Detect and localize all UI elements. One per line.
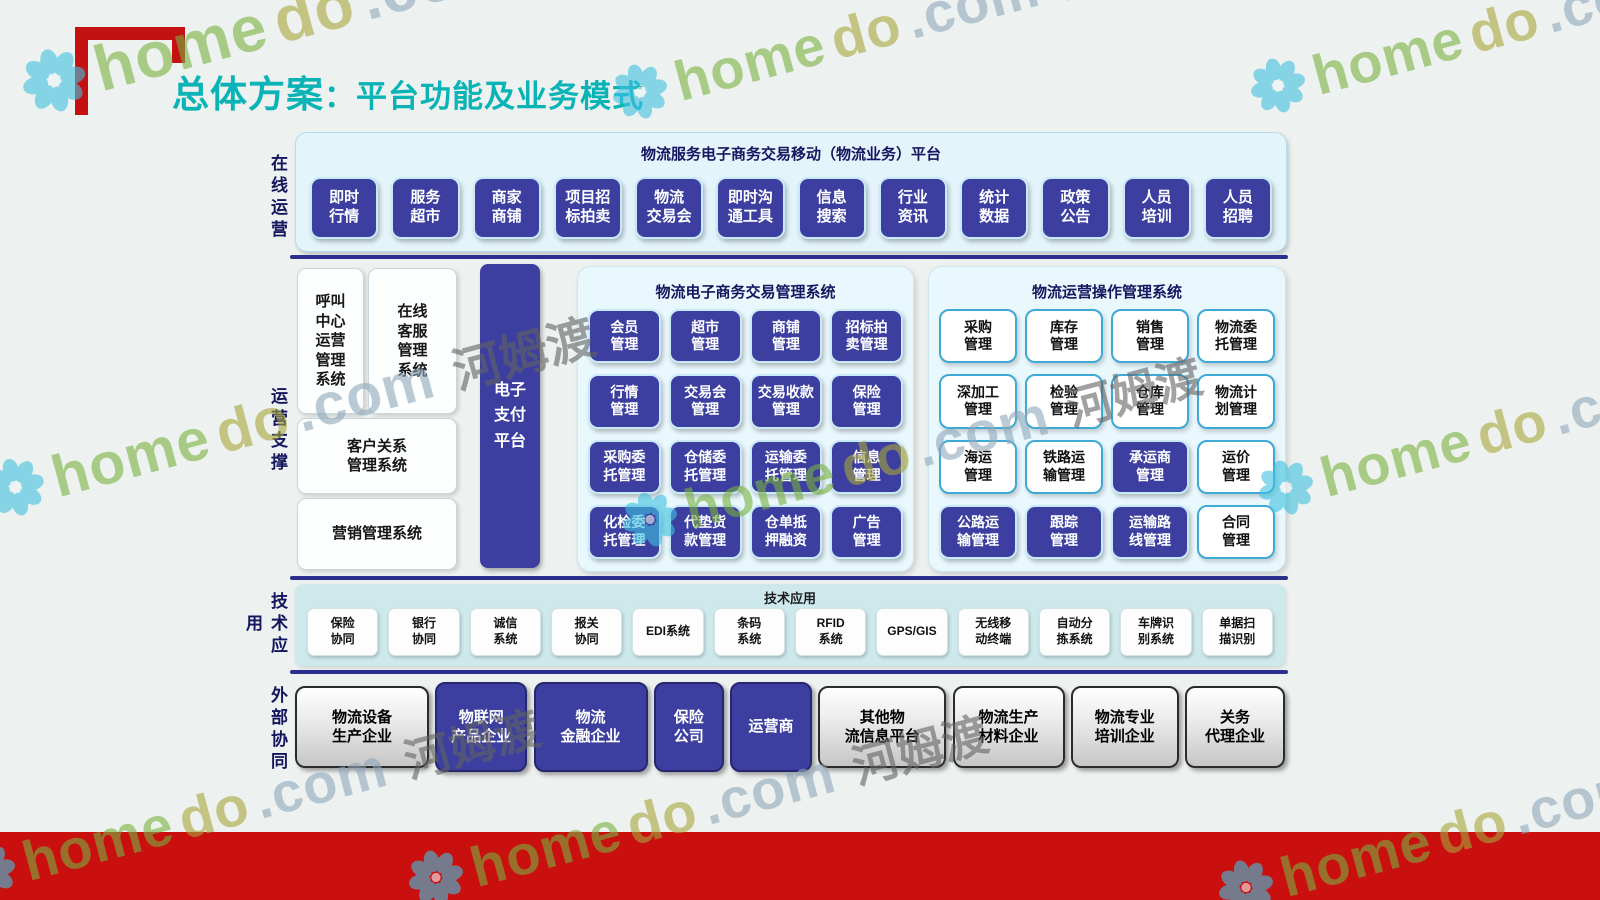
ecommerce-module-box: 仓单抵 押融资	[750, 505, 823, 559]
ecommerce-module-box: 采购委 托管理	[588, 440, 661, 494]
ecommerce-panel: 物流电子商务交易管理系统 会员 管理超市 管理商铺 管理招标拍 卖管理行情 管理…	[577, 266, 914, 572]
operation-module-box: 海运 管理	[939, 440, 1017, 494]
watermark-com-text: .com	[1545, 350, 1600, 448]
operation-panel: 物流运营操作管理系统 采购 管理库存 管理销售 管理物流委 托管理深加工 管理检…	[928, 266, 1286, 572]
homedo-watermark: homedo.com河姆渡	[1249, 308, 1600, 527]
tech-module-box: 自动分 拣系统	[1039, 608, 1110, 656]
tech-band-title: 技术应用	[295, 588, 1285, 607]
logo-bracket-left	[75, 27, 88, 115]
external-partner-box: 关务 代理企业	[1185, 686, 1285, 768]
logo-bracket-stub	[172, 27, 185, 63]
ecommerce-module-box: 代垫货 款管理	[669, 505, 742, 559]
external-partner-box: 物流 金融企业	[534, 682, 648, 772]
online-panel-title: 物流服务电子商务交易移动（物流业务）平台	[296, 143, 1286, 164]
online-feature-box: 服务 超市	[391, 177, 459, 239]
operation-module-box: 销售 管理	[1111, 309, 1189, 363]
online-feature-box: 信息 搜索	[798, 177, 866, 239]
tech-module-box: GPS/GIS	[876, 608, 947, 656]
ecommerce-module-grid: 会员 管理超市 管理商铺 管理招标拍 卖管理行情 管理交易会 管理交易收款 管理…	[588, 309, 903, 559]
ecommerce-module-box: 保险 管理	[830, 374, 903, 428]
logo-bracket-top	[75, 27, 185, 40]
operation-module-grid: 采购 管理库存 管理销售 管理物流委 托管理深加工 管理检验 管理仓库 管理物流…	[939, 309, 1275, 559]
online-feature-box: 人员 招聘	[1204, 177, 1272, 239]
watermark-do-text: do	[265, 0, 363, 57]
tech-module-box: 银行 协同	[388, 608, 459, 656]
watermark-com-text: .com	[899, 0, 1046, 51]
side-label-external: 外部协同	[264, 686, 290, 774]
tech-module-row: 保险 协同银行 协同诚信 系统报关 协同EDI系统条码 系统RFID 系统GPS…	[307, 608, 1273, 656]
operation-module-box: 运价 管理	[1197, 440, 1275, 494]
homedo-watermark: homedo.com河姆渡	[1241, 0, 1600, 125]
online-feature-box: 政策 公告	[1041, 177, 1109, 239]
homedo-watermark: homedo.com河姆渡	[603, 0, 1198, 131]
operation-module-box: 采购 管理	[939, 309, 1017, 363]
external-partner-box: 物联网 产品企业	[435, 682, 527, 772]
ecommerce-module-box: 仓储委 托管理	[669, 440, 742, 494]
footer-band	[0, 832, 1600, 900]
operation-module-box: 运输路 线管理	[1111, 505, 1189, 559]
operation-module-box: 检验 管理	[1025, 374, 1103, 428]
slide: 总体方案：平台功能及业务模式 在线运营 运营支撑 技术应用 外部协同 物流服务电…	[0, 0, 1600, 900]
operation-module-box: 合同 管理	[1197, 505, 1275, 559]
external-partner-box: 其他物 流信息平台	[818, 686, 946, 768]
external-partner-row: 物流设备 生产企业物联网 产品企业物流 金融企业保险 公司运营商其他物 流信息平…	[295, 678, 1285, 776]
ecommerce-module-box: 信息 管理	[830, 440, 903, 494]
tech-module-box: 保险 协同	[307, 608, 378, 656]
online-platform-panel: 物流服务电子商务交易移动（物流业务）平台 即时 行情服务 超市商家 商铺项目招 …	[295, 132, 1287, 252]
page-title-main: 总体方案	[172, 74, 324, 115]
online-feature-box: 物流 交易会	[635, 177, 703, 239]
online-feature-box: 项目招 标拍卖	[554, 177, 622, 239]
ecommerce-module-box: 商铺 管理	[750, 309, 823, 363]
external-partner-box: 物流设备 生产企业	[295, 686, 429, 768]
tech-module-box: 车牌识 别系统	[1120, 608, 1191, 656]
watermark-home-text: home	[1313, 407, 1478, 509]
external-partner-box: 运营商	[730, 682, 812, 772]
online-feature-box: 统计 数据	[960, 177, 1028, 239]
flower-icon	[1242, 50, 1313, 121]
operation-module-box: 公路运 输管理	[939, 505, 1017, 559]
operation-module-box: 物流计 划管理	[1197, 374, 1275, 428]
page-title-sub: ：平台功能及业务模式	[324, 79, 644, 114]
online-service-system-box: 在线 客服 管理 系统	[368, 268, 457, 414]
online-feature-row: 即时 行情服务 超市商家 商铺项目招 标拍卖物流 交易会即时沟 通工具信息 搜索…	[310, 177, 1272, 239]
watermark-do-text: do	[1461, 0, 1546, 66]
online-feature-box: 人员 培训	[1123, 177, 1191, 239]
tech-module-box: 诚信 系统	[470, 608, 541, 656]
operation-module-box: 深加工 管理	[939, 374, 1017, 428]
online-feature-box: 商家 商铺	[473, 177, 541, 239]
online-feature-box: 即时沟 通工具	[716, 177, 784, 239]
operation-module-box: 仓库 管理	[1111, 374, 1189, 428]
ecommerce-module-box: 运输委 托管理	[750, 440, 823, 494]
side-label-online: 在线运营	[264, 150, 290, 246]
online-feature-box: 即时 行情	[310, 177, 378, 239]
tech-module-box: 条码 系统	[714, 608, 785, 656]
online-feature-box: 行业 资讯	[879, 177, 947, 239]
e-payment-platform-box: 电子 支付 平台	[480, 264, 540, 568]
side-label-support: 运营支撑	[264, 378, 290, 484]
watermark-do-text: do	[823, 0, 908, 72]
watermark-home-text: home	[667, 11, 832, 113]
section-divider	[290, 670, 1288, 674]
external-partner-box: 物流生产 材料企业	[953, 686, 1065, 768]
crm-system-box: 客户关系 管理系统	[297, 418, 457, 494]
ecommerce-module-box: 交易会 管理	[669, 374, 742, 428]
watermark-com-text: .com	[352, 0, 521, 34]
operation-panel-title: 物流运营操作管理系统	[929, 281, 1285, 302]
ecommerce-module-box: 交易收款 管理	[750, 374, 823, 428]
watermark-cn-text: 河姆渡	[1048, 0, 1198, 12]
flower-icon	[0, 450, 53, 525]
tech-module-box: EDI系统	[632, 608, 703, 656]
ecommerce-module-box: 行情 管理	[588, 374, 661, 428]
call-center-system-box: 呼叫 中心 运营 管理 系统	[297, 268, 364, 414]
tech-module-box: RFID 系统	[795, 608, 866, 656]
ecommerce-panel-title: 物流电子商务交易管理系统	[578, 281, 913, 302]
operation-module-box: 物流委 托管理	[1197, 309, 1275, 363]
ecommerce-module-box: 招标拍 卖管理	[830, 309, 903, 363]
watermark-do-text: do	[1469, 387, 1554, 468]
ecommerce-module-box: 化检委 托管理	[588, 505, 661, 559]
tech-module-box: 报关 协同	[551, 608, 622, 656]
operation-module-box: 铁路运 输管理	[1025, 440, 1103, 494]
operation-module-box: 承运商 管理	[1111, 440, 1189, 494]
marketing-system-box: 营销管理系统	[297, 498, 457, 570]
section-divider	[290, 576, 1288, 580]
external-partner-box: 物流专业 培训企业	[1071, 686, 1179, 768]
tech-band: 技术应用 保险 协同银行 协同诚信 系统报关 协同EDI系统条码 系统RFID …	[295, 584, 1285, 666]
tech-module-box: 无线移 动终端	[958, 608, 1029, 656]
platform-diagram: 在线运营 运营支撑 技术应用 外部协同 物流服务电子商务交易移动（物流业务）平台…	[262, 130, 1292, 780]
watermark-home-text: home	[1305, 5, 1470, 107]
page-title: 总体方案：平台功能及业务模式	[172, 64, 644, 118]
tech-module-box: 单据扫 描识别	[1202, 608, 1273, 656]
operation-module-box: 库存 管理	[1025, 309, 1103, 363]
section-divider	[290, 255, 1288, 259]
operation-module-box: 跟踪 管理	[1025, 505, 1103, 559]
watermark-com-text: .com	[1537, 0, 1600, 45]
ecommerce-module-box: 超市 管理	[669, 309, 742, 363]
external-partner-box: 保险 公司	[654, 682, 724, 772]
side-label-tech: 技术应用	[264, 585, 290, 665]
watermark-home-text: home	[44, 402, 217, 510]
ecommerce-module-box: 广告 管理	[830, 505, 903, 559]
ecommerce-module-box: 会员 管理	[588, 309, 661, 363]
